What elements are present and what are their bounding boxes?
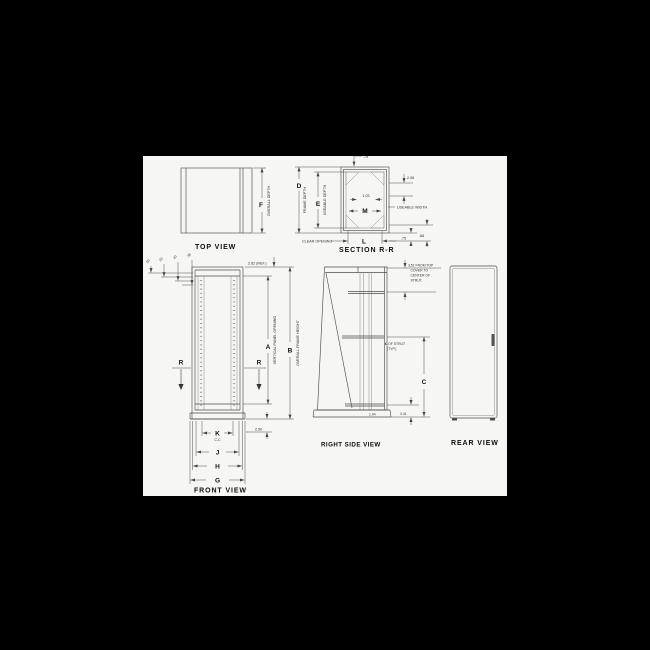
dim-l-label: L: [362, 239, 366, 246]
gusset-bottom-left: [346, 215, 359, 228]
note-line-4: STRUT.: [411, 279, 423, 283]
section-rr-label: SECTION R-R: [339, 247, 394, 254]
foot-left: [452, 418, 457, 421]
top-view: F OVERALL DEPTH TOP VIEW: [181, 168, 271, 251]
section-rr: .75 D FRAME DEPTH E USEABLE DEPTH 1.03: [295, 156, 433, 254]
side-view-outline: [318, 267, 388, 410]
right-side-view: 1.04 3.51 FROM TOP COVER TO CENTER OF ST…: [313, 260, 441, 449]
useable-depth-label: USEABLE DEPTH: [323, 184, 327, 215]
chain-dim-38: .38: [186, 252, 192, 258]
drawing-svg: F OVERALL DEPTH TOP VIEW .75: [143, 156, 507, 496]
cut-arrow-left: [178, 384, 183, 390]
value-103: 1.03: [362, 194, 369, 198]
value-250: 2.50: [255, 428, 262, 432]
dim-d-label: D: [297, 183, 302, 190]
value-75-bottom: .75: [401, 237, 406, 241]
dim-e-label: E: [316, 201, 321, 208]
dim-j-label: J: [216, 450, 220, 457]
drawing-sheet: F OVERALL DEPTH TOP VIEW .75: [143, 156, 507, 496]
dim-a-label: A: [266, 344, 271, 351]
foot-right: [490, 418, 495, 421]
gusset-top-left: [346, 172, 359, 185]
value-88: .88: [419, 234, 424, 238]
front-view-label: FRONT VIEW: [194, 488, 247, 495]
value-104: 1.04: [369, 413, 376, 417]
strut-note-line-2: (TYP.): [387, 347, 396, 351]
front-view: .50 .63 .43 .38 2.62 (REF.) R R: [145, 252, 300, 494]
chain-dim-43: .43: [172, 254, 178, 260]
note-line-2: COVER TO: [411, 269, 429, 273]
dim-k-label: K: [215, 431, 220, 438]
section-cut-r-left: R: [179, 360, 184, 367]
dim-b-label: B: [288, 348, 293, 355]
clear-opening-label: CLEAR OPENING: [302, 240, 332, 244]
dim-m-label: M: [362, 208, 367, 215]
section-cut-r-right: R: [257, 360, 262, 367]
front-view-outline: [192, 267, 243, 419]
right-side-view-label: RIGHT SIDE VIEW: [321, 442, 381, 449]
rear-view-label: REAR VIEW: [451, 440, 499, 447]
blueprint-canvas: F OVERALL DEPTH TOP VIEW .75: [0, 0, 650, 650]
value-208: 2.08: [407, 176, 414, 180]
strut-note-line-1: ℄ OF STRUT: [384, 342, 405, 346]
dim-k-cc-label: C-C: [214, 438, 221, 442]
chain-dim-50: .50: [145, 258, 151, 264]
note-line-1: 3.51 FROM TOP: [408, 264, 434, 268]
gusset-bottom-right: [371, 215, 384, 228]
top-view-outline: [181, 168, 252, 233]
rear-view-outline: [450, 266, 497, 418]
vertical-panel-opening-label: VERTICAL PANEL OPENING: [273, 316, 277, 365]
door-handle: [492, 334, 495, 346]
gusset-top-right: [371, 172, 384, 185]
dim-g-label: G: [215, 478, 220, 485]
dim-c-label: C: [422, 379, 427, 386]
value-75-top: .75: [363, 156, 368, 159]
frame-depth-label: FRAME DEPTH: [303, 186, 307, 213]
chain-dim-63: .63: [158, 256, 164, 262]
rear-view: REAR VIEW: [450, 266, 499, 447]
dim-f-label: F: [259, 202, 263, 209]
section-outline: [341, 167, 389, 233]
useable-width-label: USEABLE WIDTH: [397, 206, 427, 210]
note-line-3: CENTER OF: [411, 274, 431, 278]
overall-depth-label: OVERALL DEPTH: [267, 185, 271, 216]
ref-262: 2.62 (REF.): [248, 262, 267, 266]
cut-arrow-right: [256, 384, 261, 390]
overall-frame-height-label: OVERALL FRAME HEIGHT: [296, 319, 300, 366]
value-341: 3.41: [400, 412, 407, 416]
top-view-label: TOP VIEW: [195, 244, 236, 251]
dim-h-label: H: [215, 464, 220, 471]
